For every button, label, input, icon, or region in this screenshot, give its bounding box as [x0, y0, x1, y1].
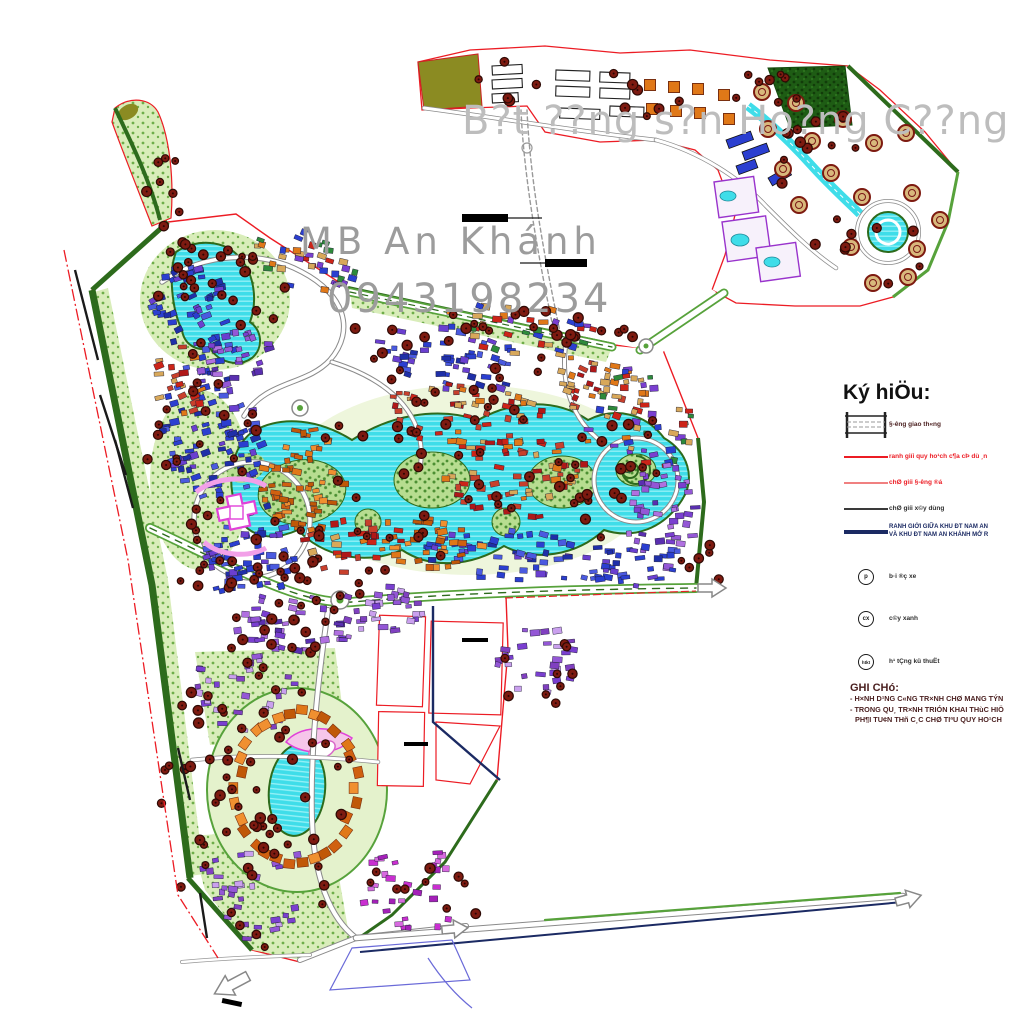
legend-label: b·i ®ç xe — [889, 573, 916, 581]
navy-line-icon — [843, 530, 889, 534]
legend-label: chØ giíi §-êng ®á — [889, 479, 942, 487]
note-line: PH¶I TU¢N THñ C¸C CHØ TIªU QUY HO¹CH — [850, 715, 1004, 726]
legend-item-build-line: chØ giíi x©y dùng — [843, 505, 944, 513]
notes-title: GHI CHó: — [850, 682, 1004, 694]
southeast-exit-arrow — [894, 887, 924, 911]
connector-strip — [614, 282, 716, 352]
legend-item-greenery: cx c©y xanh — [843, 611, 918, 627]
legend-label: ranh giíi quy ho¹ch c¶a cÞ dù ¸n — [889, 453, 987, 461]
road-legend-icon — [843, 411, 889, 439]
master-plan-page: B?t ??ng s?n Ho?ng C??ng MB An Khánh 094… — [0, 0, 1024, 1011]
legend-item-infrastructure: htkt h¹ tÇng kü thuËt — [843, 654, 940, 670]
note-line: - TRONG QU¸ TR×NH TRIÓN KHAI THùC HIÖ — [850, 705, 1004, 716]
notes-block: GHI CHó: - H×NH D¹NG C«NG TR×NH CHØ MANG… — [850, 682, 1004, 726]
legend: Ký hiÖu: §-êng giao th«ng ranh giíi quy … — [843, 381, 1023, 405]
greenery-icon: cx — [858, 611, 874, 627]
legend-item-planning-boundary: ranh giíi quy ho¹ch c¶a cÞ dù ¸n — [843, 453, 987, 461]
legend-title: Ký hiÖu: — [843, 381, 1023, 405]
legend-item-district-boundary: RANH GIỚI GIỮA KHU ĐT NAM AN VÀ KHU ĐT N… — [843, 524, 988, 539]
legend-label: §-êng giao th«ng — [889, 421, 941, 429]
legend-label: chØ giíi x©y dùng — [889, 505, 944, 513]
black-line-icon — [843, 508, 889, 510]
legend-label: RANH GIỚI GIỮA KHU ĐT NAM AN VÀ KHU ĐT N… — [889, 524, 988, 539]
legend-label: h¹ tÇng kü thuËt — [889, 658, 940, 666]
note-line: - H×NH D¹NG C«NG TR×NH CHØ MANG TÝN — [850, 694, 1004, 705]
southwest-arrow — [209, 966, 253, 1003]
infrastructure-icon: htkt — [858, 654, 874, 670]
pink-line-icon — [843, 482, 889, 484]
parking-icon: p — [858, 569, 874, 585]
legend-label: c©y xanh — [889, 615, 918, 623]
legend-item-parking: p b·i ®ç xe — [843, 569, 916, 585]
olive-field — [418, 54, 482, 110]
legend-item-road: §-êng giao th«ng — [843, 411, 941, 439]
red-line-icon — [843, 456, 889, 458]
legend-item-red-line: chØ giíi §-êng ®á — [843, 479, 942, 487]
